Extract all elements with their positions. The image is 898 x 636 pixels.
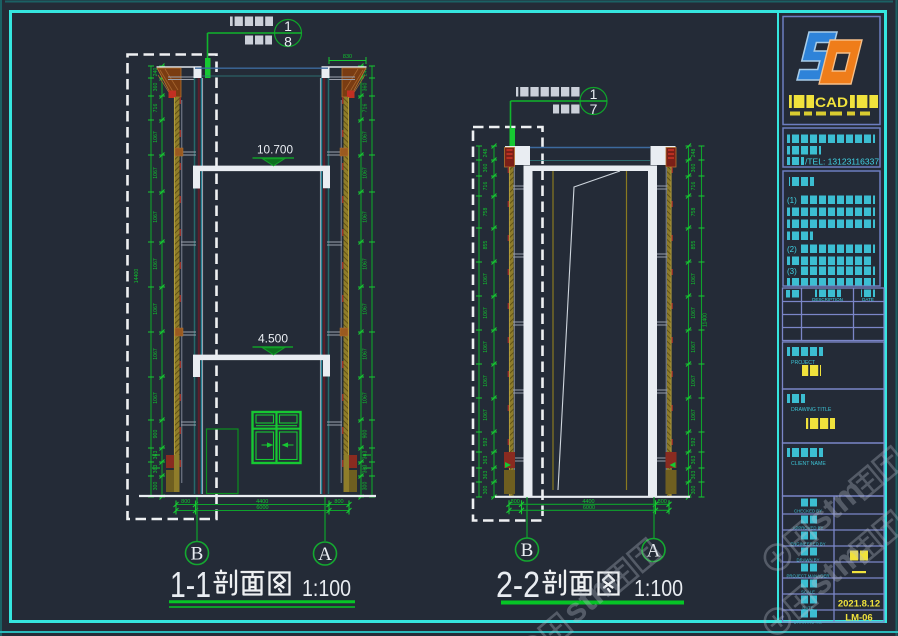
svg-text:248: 248 [691, 149, 697, 158]
svg-text:1067: 1067 [691, 307, 697, 319]
svg-text:1067: 1067 [483, 409, 489, 421]
svg-text:360: 360 [153, 83, 159, 92]
svg-text:855: 855 [691, 241, 697, 250]
svg-text:A: A [318, 544, 332, 565]
svg-text:300: 300 [691, 486, 697, 495]
svg-text:DRAWING TITLE: DRAWING TITLE [791, 407, 832, 413]
svg-text:716: 716 [691, 182, 697, 191]
svg-text:4.500: 4.500 [258, 332, 288, 346]
svg-text:(3): (3) [787, 267, 797, 276]
svg-text:1067: 1067 [483, 307, 489, 319]
svg-text:855: 855 [483, 241, 489, 250]
svg-text:1067: 1067 [363, 348, 369, 360]
svg-text:1067: 1067 [153, 348, 159, 360]
svg-text:1067: 1067 [691, 273, 697, 285]
svg-text:360: 360 [691, 164, 697, 173]
svg-text:800: 800 [658, 499, 667, 505]
svg-text:360: 360 [483, 164, 489, 173]
svg-text:1067: 1067 [153, 392, 159, 404]
svg-text:300: 300 [153, 482, 159, 491]
svg-text:DRAWING No.: DRAWING No. [794, 620, 823, 625]
svg-text:1067: 1067 [363, 392, 369, 404]
svg-text:2021.8.12: 2021.8.12 [838, 599, 880, 610]
svg-text:1067: 1067 [483, 375, 489, 387]
svg-text:DATE: DATE [862, 297, 874, 302]
svg-text:363: 363 [483, 456, 489, 465]
svg-text:900: 900 [153, 430, 159, 439]
svg-text:1: 1 [590, 86, 598, 102]
svg-text:DESCRIPTION: DESCRIPTION [812, 297, 843, 302]
svg-text:716: 716 [363, 104, 369, 113]
svg-text:/TEL: 13123116337: /TEL: 13123116337 [805, 157, 879, 167]
svg-text:11400: 11400 [703, 313, 709, 327]
svg-text:1067: 1067 [153, 303, 159, 315]
svg-text:(1): (1) [787, 196, 797, 205]
svg-text:300: 300 [483, 486, 489, 495]
svg-text:1067: 1067 [363, 131, 369, 143]
svg-text:B: B [521, 540, 534, 561]
svg-text:8: 8 [284, 34, 292, 50]
svg-text:1067: 1067 [483, 273, 489, 285]
svg-text:1:100: 1:100 [634, 575, 683, 601]
svg-text:716: 716 [153, 104, 159, 113]
svg-text:800: 800 [334, 499, 343, 505]
svg-text:592: 592 [483, 438, 489, 447]
svg-text:363: 363 [691, 456, 697, 465]
svg-text:(2): (2) [787, 245, 797, 254]
svg-text:1-1: 1-1 [170, 564, 211, 605]
svg-text:248: 248 [483, 149, 489, 158]
svg-text:830: 830 [343, 54, 352, 60]
svg-text:758: 758 [483, 208, 489, 217]
svg-text:716: 716 [483, 182, 489, 191]
svg-text:800: 800 [181, 499, 190, 505]
svg-text:1067: 1067 [483, 341, 489, 353]
svg-text:1067: 1067 [691, 409, 697, 421]
svg-text:900: 900 [363, 430, 369, 439]
svg-text:1067: 1067 [153, 211, 159, 223]
svg-text:1067: 1067 [691, 375, 697, 387]
svg-text:6000: 6000 [256, 505, 268, 511]
svg-text:363: 363 [691, 471, 697, 480]
svg-text:2-2: 2-2 [496, 564, 540, 605]
svg-text:CLIENT NAME: CLIENT NAME [791, 461, 826, 467]
svg-text:363: 363 [363, 465, 369, 474]
svg-text:10.700: 10.700 [257, 143, 293, 157]
svg-text:363: 363 [483, 471, 489, 480]
svg-text:7: 7 [590, 101, 598, 117]
svg-text:1067: 1067 [153, 258, 159, 270]
svg-text:1067: 1067 [153, 167, 159, 179]
svg-text:360: 360 [363, 83, 369, 92]
svg-text:363: 363 [153, 465, 159, 474]
svg-text:1067: 1067 [363, 211, 369, 223]
svg-text:1067: 1067 [153, 131, 159, 143]
svg-text:1067: 1067 [691, 341, 697, 353]
svg-text:CAD: CAD [815, 95, 848, 110]
svg-text:1067: 1067 [363, 167, 369, 179]
svg-text:1067: 1067 [363, 258, 369, 270]
svg-text:800: 800 [511, 499, 520, 505]
svg-text:300: 300 [363, 482, 369, 491]
svg-text:1:100: 1:100 [302, 575, 351, 601]
svg-text:LM-06: LM-06 [845, 613, 872, 624]
svg-text:14400: 14400 [134, 269, 140, 284]
svg-text:1067: 1067 [363, 303, 369, 315]
svg-text:6000: 6000 [583, 505, 595, 511]
svg-text:592: 592 [691, 438, 697, 447]
svg-text:B: B [191, 544, 204, 565]
svg-text:1: 1 [284, 18, 292, 34]
svg-text:758: 758 [691, 208, 697, 217]
